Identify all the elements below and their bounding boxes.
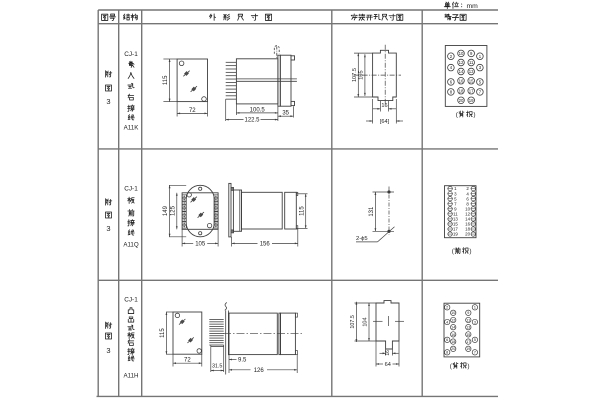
svg-text:A11H: A11H bbox=[123, 372, 138, 379]
svg-text:6: 6 bbox=[450, 79, 453, 84]
svg-text:9: 9 bbox=[470, 51, 473, 56]
svg-text:11: 11 bbox=[469, 60, 474, 65]
svg-text:131: 131 bbox=[369, 206, 375, 217]
svg-text:17: 17 bbox=[469, 88, 474, 93]
svg-text:12: 12 bbox=[459, 60, 464, 65]
svg-text:20: 20 bbox=[459, 98, 464, 103]
svg-text:104: 104 bbox=[363, 317, 369, 326]
svg-text:18: 18 bbox=[451, 340, 455, 344]
svg-text:15: 15 bbox=[466, 333, 470, 337]
svg-text:(: ( bbox=[450, 363, 453, 370]
svg-text:CJ-1: CJ-1 bbox=[124, 296, 138, 303]
svg-text:107.5: 107.5 bbox=[350, 315, 356, 329]
svg-text:72: 72 bbox=[184, 358, 191, 364]
svg-text:17: 17 bbox=[466, 340, 470, 344]
svg-text:3: 3 bbox=[479, 65, 482, 70]
svg-text:5: 5 bbox=[474, 338, 476, 342]
svg-text:18: 18 bbox=[459, 88, 464, 93]
svg-text:2: 2 bbox=[450, 54, 453, 59]
svg-text:A11K: A11K bbox=[124, 125, 140, 132]
svg-text:105: 105 bbox=[195, 242, 206, 248]
svg-text:115: 115 bbox=[163, 75, 169, 85]
svg-text:3: 3 bbox=[106, 97, 110, 106]
svg-text:10: 10 bbox=[451, 311, 455, 315]
svg-text:): ) bbox=[469, 248, 471, 255]
svg-text:6: 6 bbox=[446, 338, 448, 342]
svg-text:2: 2 bbox=[446, 306, 448, 310]
svg-text:19: 19 bbox=[466, 347, 470, 351]
svg-text:mm: mm bbox=[467, 3, 479, 10]
svg-text:125: 125 bbox=[170, 205, 176, 216]
svg-text:100.5: 100.5 bbox=[250, 107, 266, 113]
svg-text:12: 12 bbox=[451, 318, 455, 322]
svg-text:4: 4 bbox=[450, 65, 453, 70]
svg-text:11: 11 bbox=[466, 318, 470, 322]
svg-text:35: 35 bbox=[282, 110, 289, 116]
svg-text:20: 20 bbox=[451, 347, 455, 351]
svg-text:5: 5 bbox=[479, 79, 482, 84]
svg-text:7: 7 bbox=[474, 351, 476, 355]
svg-text:105: 105 bbox=[359, 70, 365, 79]
svg-text:122.5: 122.5 bbox=[244, 118, 260, 124]
svg-text:19: 19 bbox=[469, 98, 474, 103]
svg-text:14: 14 bbox=[451, 326, 455, 330]
svg-text:115: 115 bbox=[299, 206, 305, 216]
svg-text:115: 115 bbox=[160, 328, 166, 338]
svg-text:13: 13 bbox=[466, 326, 470, 330]
svg-text:1: 1 bbox=[479, 54, 482, 59]
svg-text:): ) bbox=[467, 363, 469, 370]
svg-text:8: 8 bbox=[446, 351, 448, 355]
svg-text:13: 13 bbox=[469, 69, 474, 74]
svg-text:16: 16 bbox=[451, 333, 455, 337]
svg-text:107.5: 107.5 bbox=[352, 68, 358, 82]
svg-text:15: 15 bbox=[469, 78, 474, 83]
svg-text:72: 72 bbox=[189, 108, 196, 114]
svg-text:8: 8 bbox=[450, 89, 453, 94]
svg-text:16: 16 bbox=[459, 78, 464, 83]
svg-text:A11Q: A11Q bbox=[123, 241, 139, 248]
svg-text:9.5: 9.5 bbox=[238, 358, 247, 364]
svg-text:16: 16 bbox=[385, 350, 391, 356]
svg-text:64: 64 bbox=[385, 362, 391, 368]
svg-text:4: 4 bbox=[446, 320, 448, 324]
svg-text:19: 19 bbox=[453, 232, 458, 237]
svg-text:(: ( bbox=[456, 111, 459, 118]
svg-text:1: 1 bbox=[474, 306, 476, 310]
svg-text:7: 7 bbox=[479, 89, 482, 94]
svg-text:3: 3 bbox=[474, 320, 476, 324]
svg-text:CJ-1: CJ-1 bbox=[124, 51, 138, 58]
svg-text:2-ϕ5: 2-ϕ5 bbox=[356, 236, 368, 242]
svg-text:126: 126 bbox=[254, 368, 265, 374]
svg-text:149: 149 bbox=[163, 205, 169, 216]
svg-text:20: 20 bbox=[465, 232, 470, 237]
svg-text:3: 3 bbox=[106, 224, 110, 233]
svg-text:156: 156 bbox=[260, 242, 271, 248]
svg-text:3: 3 bbox=[106, 346, 110, 355]
svg-text:16: 16 bbox=[381, 103, 387, 109]
svg-text:31.5: 31.5 bbox=[212, 364, 223, 370]
svg-text:14: 14 bbox=[459, 69, 464, 74]
svg-text:9: 9 bbox=[467, 311, 469, 315]
svg-text:CJ-1: CJ-1 bbox=[124, 185, 138, 192]
svg-text:): ) bbox=[473, 111, 475, 118]
svg-text:10: 10 bbox=[459, 51, 464, 56]
svg-text:[64]: [64] bbox=[380, 119, 390, 125]
